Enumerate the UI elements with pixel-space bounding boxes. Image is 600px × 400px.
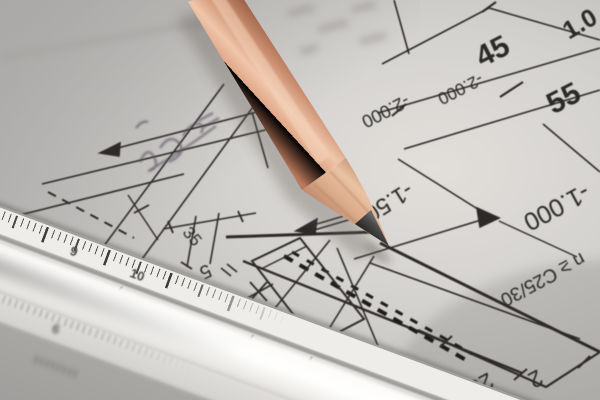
photo-architectural-drawing: 45 55 1.0 -2.000 -2.000 -1.50 -1.000 n ≥… bbox=[0, 0, 600, 400]
ruler-number: 6 bbox=[50, 321, 62, 338]
ruler-tick-marks-minor bbox=[29, 354, 81, 380]
